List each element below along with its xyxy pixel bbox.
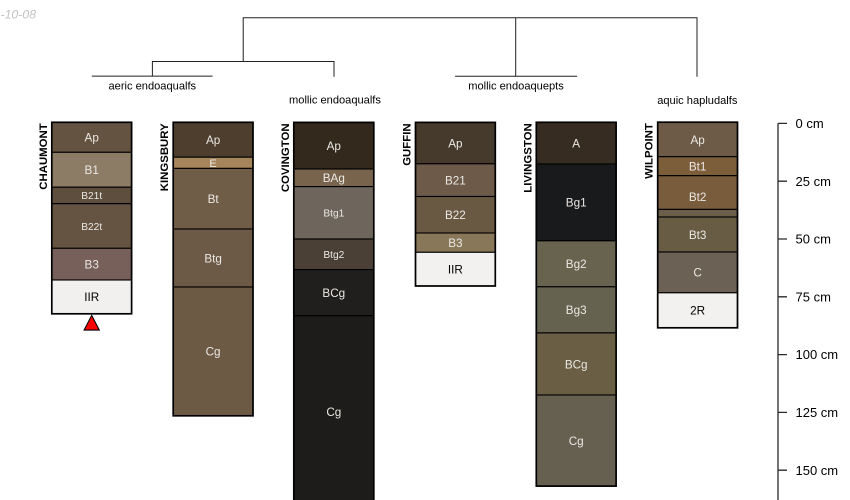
svg-text:C: C bbox=[693, 267, 701, 280]
svg-text:E: E bbox=[209, 158, 216, 170]
svg-text:Bt2: Bt2 bbox=[689, 191, 707, 204]
svg-text:2R: 2R bbox=[690, 305, 705, 318]
svg-text:B22: B22 bbox=[445, 209, 466, 222]
svg-text:CHAUMONT: CHAUMONT bbox=[38, 123, 50, 189]
svg-text:Ap: Ap bbox=[327, 140, 342, 153]
svg-text:GUFFIN: GUFFIN bbox=[402, 123, 414, 165]
svg-text:Btg2: Btg2 bbox=[323, 250, 344, 261]
svg-text:125 cm: 125 cm bbox=[796, 405, 839, 420]
svg-text:mollic endoaqualfs: mollic endoaqualfs bbox=[289, 95, 381, 107]
svg-text:B21: B21 bbox=[445, 175, 466, 188]
svg-text:BAg: BAg bbox=[323, 172, 345, 185]
svg-text:B3: B3 bbox=[85, 259, 99, 272]
svg-text:B1: B1 bbox=[85, 164, 99, 177]
svg-text:Cg: Cg bbox=[206, 346, 221, 359]
svg-text:IIR: IIR bbox=[84, 291, 99, 304]
svg-text:WILPOINT: WILPOINT bbox=[644, 123, 656, 179]
svg-text:Bg2: Bg2 bbox=[566, 258, 587, 271]
svg-text:aquic hapludalfs: aquic hapludalfs bbox=[657, 95, 738, 107]
svg-text:mollic endoaquepts: mollic endoaquepts bbox=[468, 80, 564, 92]
svg-text:Bg3: Bg3 bbox=[566, 304, 587, 317]
svg-text:BCg: BCg bbox=[322, 287, 345, 300]
svg-text:75 cm: 75 cm bbox=[796, 289, 831, 304]
svg-text:Bt1: Bt1 bbox=[689, 161, 707, 174]
svg-text:Bt3: Bt3 bbox=[689, 229, 707, 242]
svg-text:100 cm: 100 cm bbox=[796, 347, 839, 362]
svg-text:LIVINGSTON: LIVINGSTON bbox=[522, 123, 534, 192]
svg-text:Cg: Cg bbox=[326, 406, 341, 419]
svg-text:25 cm: 25 cm bbox=[796, 174, 831, 189]
svg-text:Ap: Ap bbox=[448, 137, 463, 150]
svg-text:Bt: Bt bbox=[208, 193, 220, 206]
svg-text:Ap: Ap bbox=[206, 134, 221, 147]
svg-text:KINGSBURY: KINGSBURY bbox=[159, 123, 171, 191]
svg-text:0 cm: 0 cm bbox=[796, 116, 824, 131]
svg-text:Btg1: Btg1 bbox=[323, 209, 344, 220]
svg-text:B22t: B22t bbox=[81, 222, 102, 233]
svg-text:Ap: Ap bbox=[85, 132, 100, 145]
svg-text:IIR: IIR bbox=[448, 264, 463, 277]
svg-text:B3: B3 bbox=[448, 237, 462, 250]
svg-text:Ap: Ap bbox=[690, 134, 705, 147]
svg-text:Cg: Cg bbox=[569, 435, 584, 448]
svg-text:Bg1: Bg1 bbox=[566, 197, 587, 210]
svg-text:-10-08: -10-08 bbox=[1, 8, 37, 22]
svg-text:50 cm: 50 cm bbox=[796, 232, 831, 247]
svg-text:B21t: B21t bbox=[81, 191, 102, 202]
svg-text:aeric endoaqualfs: aeric endoaqualfs bbox=[109, 80, 197, 92]
svg-text:A: A bbox=[572, 138, 580, 151]
svg-text:150 cm: 150 cm bbox=[796, 463, 839, 478]
svg-text:Btg: Btg bbox=[204, 252, 222, 265]
svg-text:COVINGTON: COVINGTON bbox=[280, 123, 292, 192]
svg-text:BCg: BCg bbox=[565, 358, 588, 371]
